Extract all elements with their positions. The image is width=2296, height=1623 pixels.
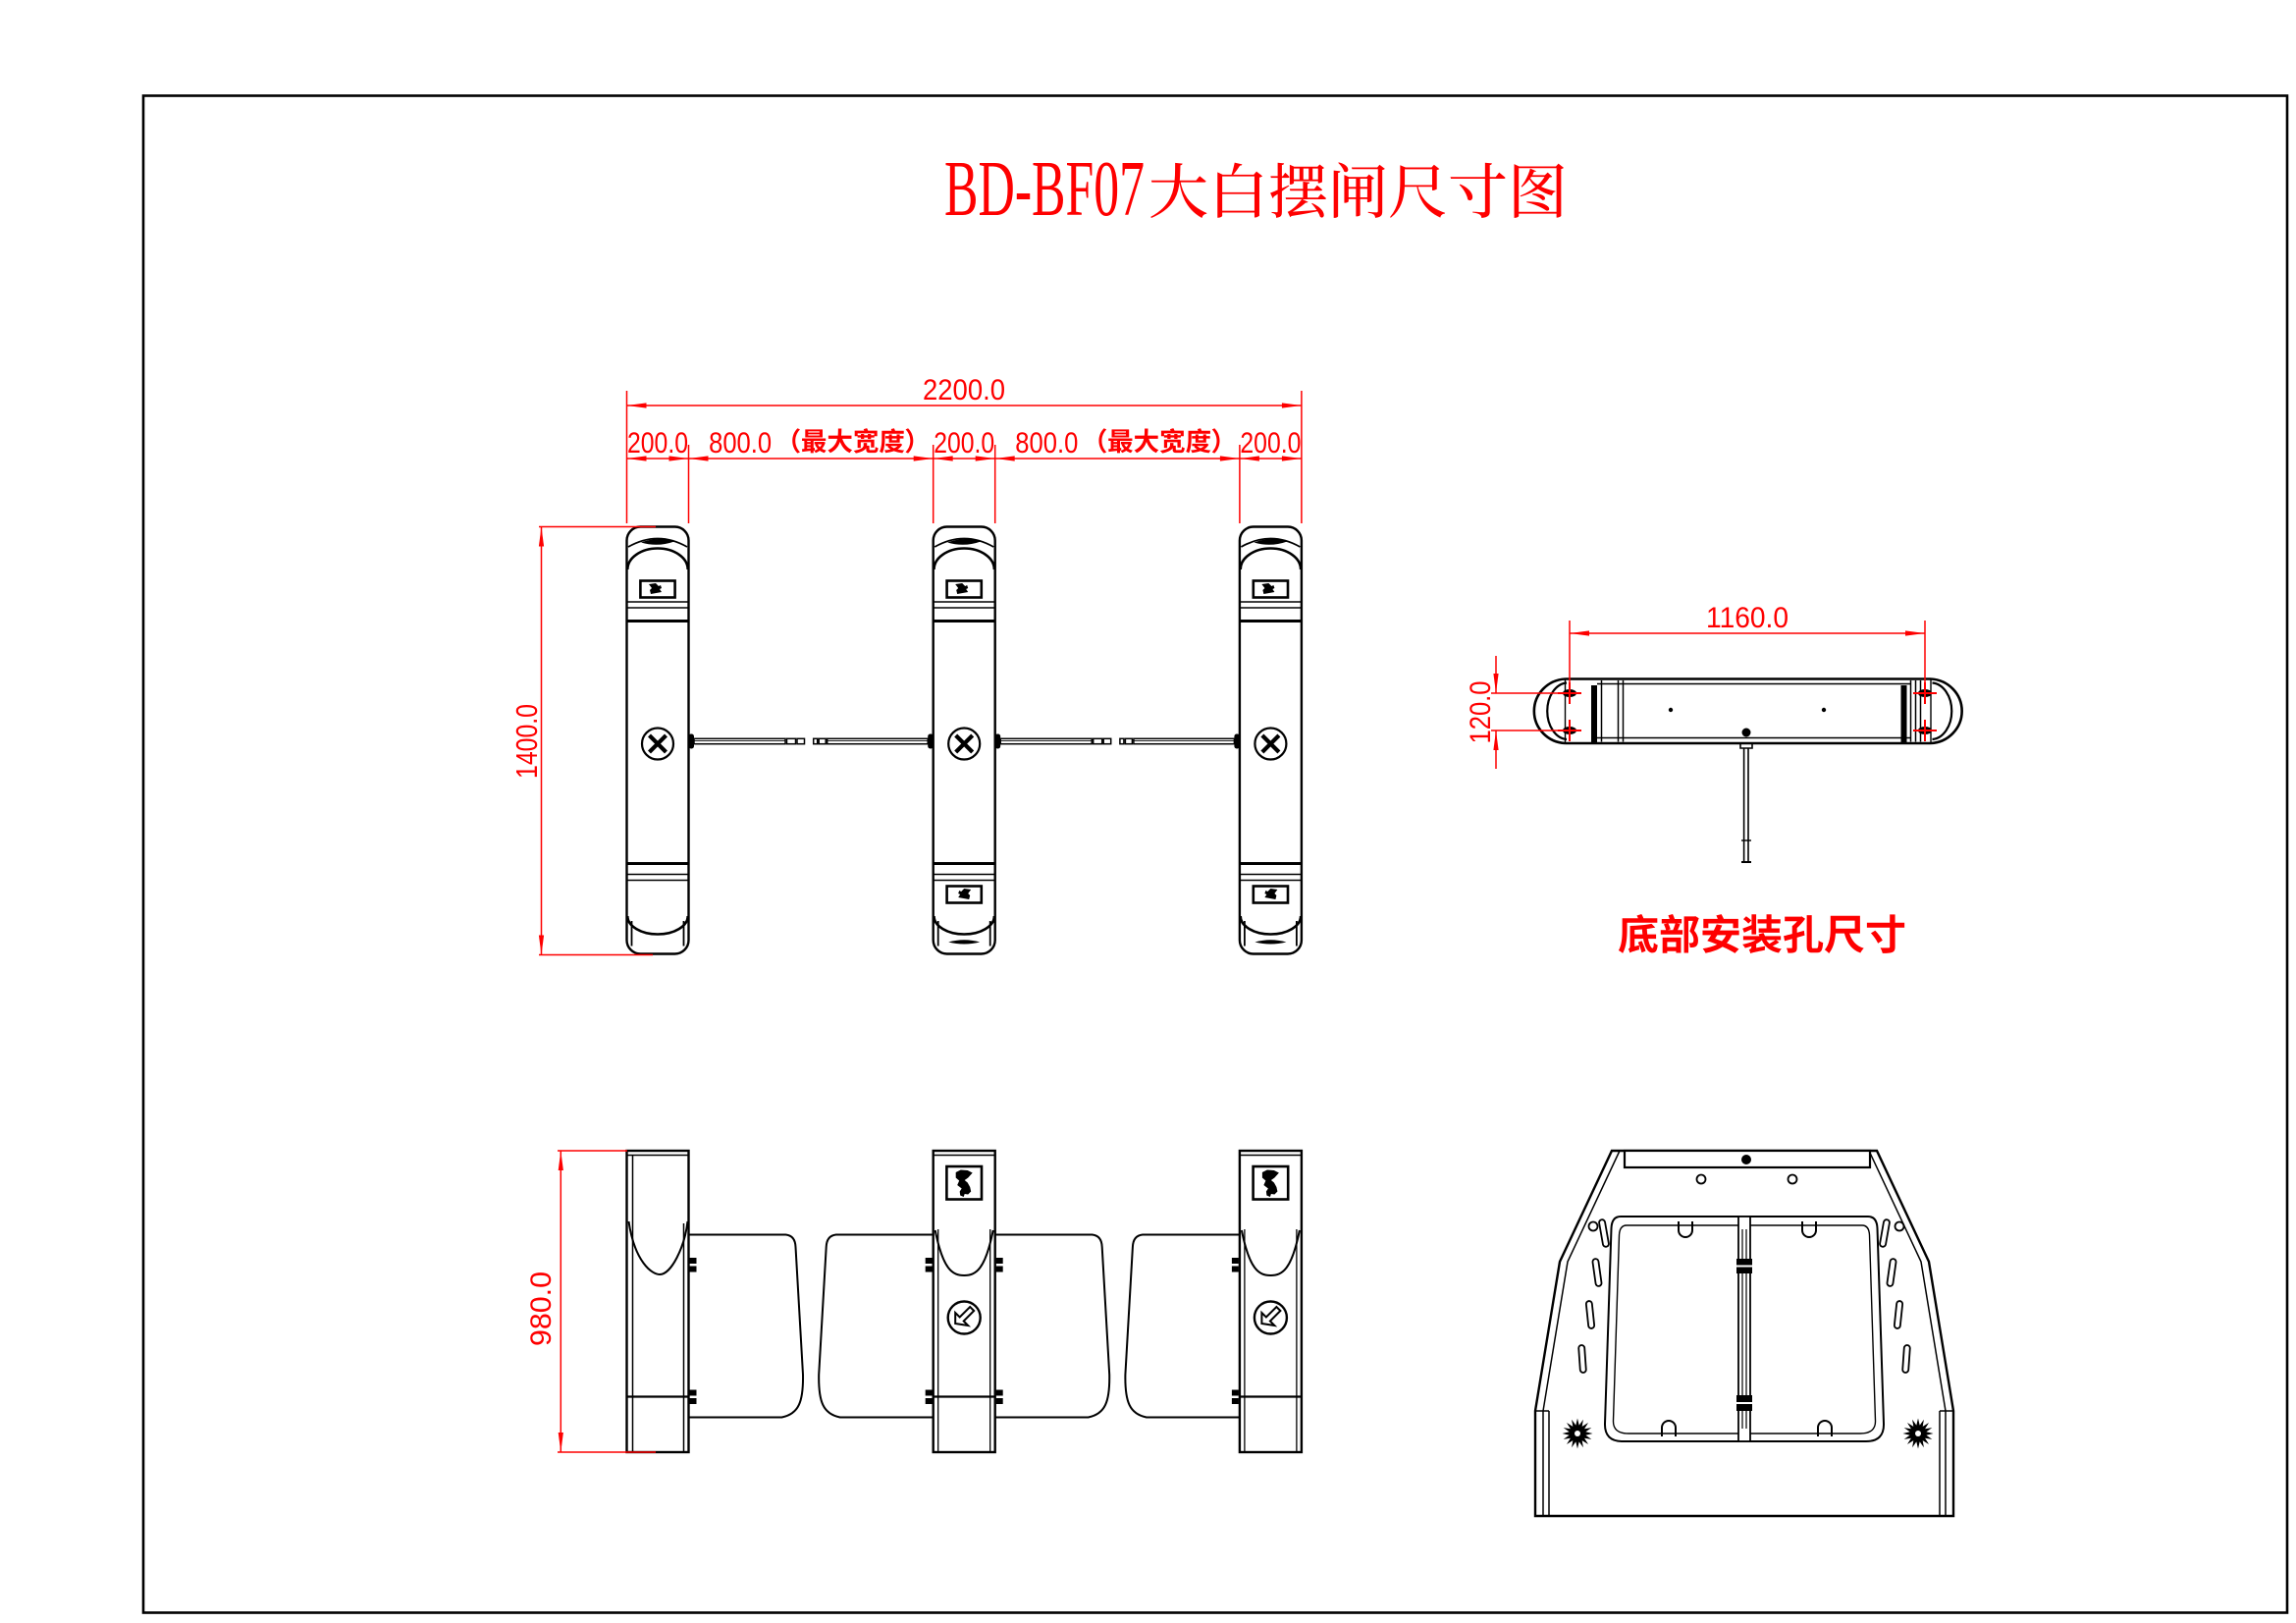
svg-text:200.0: 200.0 bbox=[934, 427, 994, 460]
svg-text:2200.0: 2200.0 bbox=[923, 374, 1005, 406]
svg-text:1160.0: 1160.0 bbox=[1706, 602, 1789, 634]
svg-text:800.0: 800.0 bbox=[1015, 427, 1078, 460]
svg-text:800.0: 800.0 bbox=[709, 427, 772, 460]
svg-text:120.0: 120.0 bbox=[1465, 681, 1497, 744]
svg-text:980.0: 980.0 bbox=[525, 1271, 558, 1346]
svg-text:200.0: 200.0 bbox=[627, 427, 688, 460]
svg-text:200.0: 200.0 bbox=[1240, 427, 1301, 460]
svg-text:BD-BF07: BD-BF07 bbox=[944, 146, 1145, 233]
svg-text:1400.0: 1400.0 bbox=[509, 704, 544, 779]
